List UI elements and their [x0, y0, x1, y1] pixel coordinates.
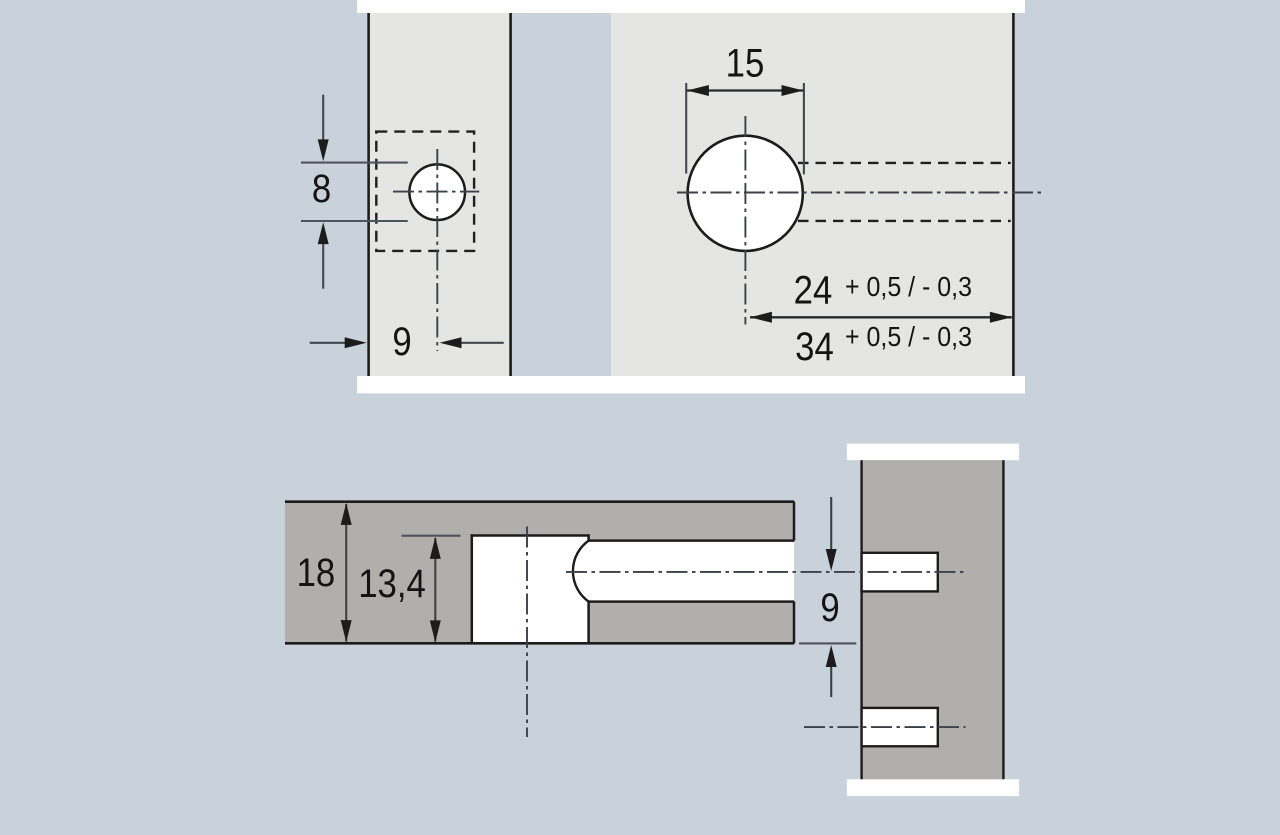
- svg-text:+ 0,5 / - 0,3: + 0,5 / - 0,3: [845, 321, 972, 352]
- svg-text:15: 15: [726, 41, 765, 86]
- svg-text:9: 9: [820, 585, 839, 630]
- svg-text:24: 24: [794, 267, 833, 312]
- svg-text:34: 34: [795, 324, 834, 369]
- svg-text:8: 8: [312, 166, 331, 211]
- svg-text:18: 18: [297, 550, 336, 595]
- svg-text:+ 0,5 / - 0,3: + 0,5 / - 0,3: [845, 271, 972, 302]
- svg-text:13,4: 13,4: [358, 561, 426, 606]
- svg-text:9: 9: [392, 319, 411, 364]
